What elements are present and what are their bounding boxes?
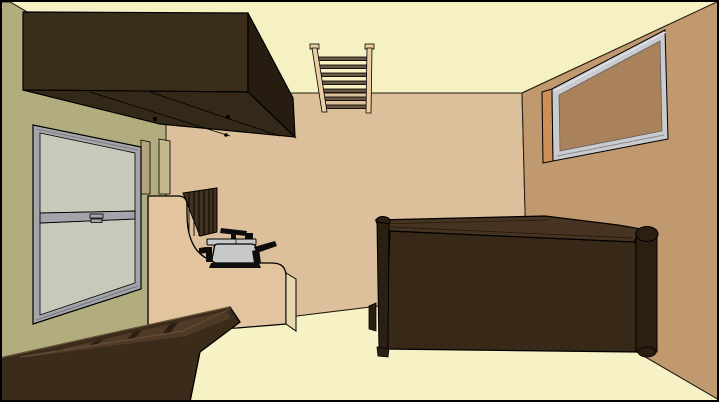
- pot-body: [212, 244, 258, 263]
- board-edge-strip: [542, 89, 553, 163]
- ladder-rung: [320, 81, 368, 85]
- room-scene: [0, 0, 719, 402]
- table: [369, 216, 658, 357]
- table-foot-right: [638, 347, 656, 357]
- ladder-rung: [322, 89, 369, 93]
- ladder-rung: [316, 65, 368, 69]
- table-post-left: [377, 222, 389, 351]
- counter-end-panel: [286, 273, 296, 331]
- window-side-trim: [141, 140, 150, 194]
- pot-left-handle: [206, 247, 212, 262]
- table-foot-left: [377, 347, 389, 357]
- cabinet-knob: [226, 115, 230, 119]
- ladder-rung: [315, 57, 369, 61]
- cabinet-latch: [224, 133, 228, 137]
- table-rear-leg: [369, 303, 376, 331]
- window-latch-base: [91, 219, 102, 223]
- room-render: [0, 0, 719, 402]
- table-front-face: [385, 231, 637, 352]
- cabinet-front-face: [23, 12, 248, 92]
- table-post-cap-right: [636, 227, 658, 242]
- ladder-rung: [325, 105, 368, 109]
- table-post-right: [636, 232, 657, 352]
- wall-corner-trim: [159, 139, 170, 194]
- ladder-rung: [318, 73, 368, 77]
- window-latch: [90, 214, 103, 218]
- double-hung-window: [33, 125, 141, 324]
- ladder-rail-right: [366, 48, 372, 113]
- cabinet-knob: [153, 117, 157, 121]
- pot-base: [209, 263, 261, 268]
- ladder-rung: [323, 97, 368, 101]
- pot-left-handle-grip: [199, 247, 206, 254]
